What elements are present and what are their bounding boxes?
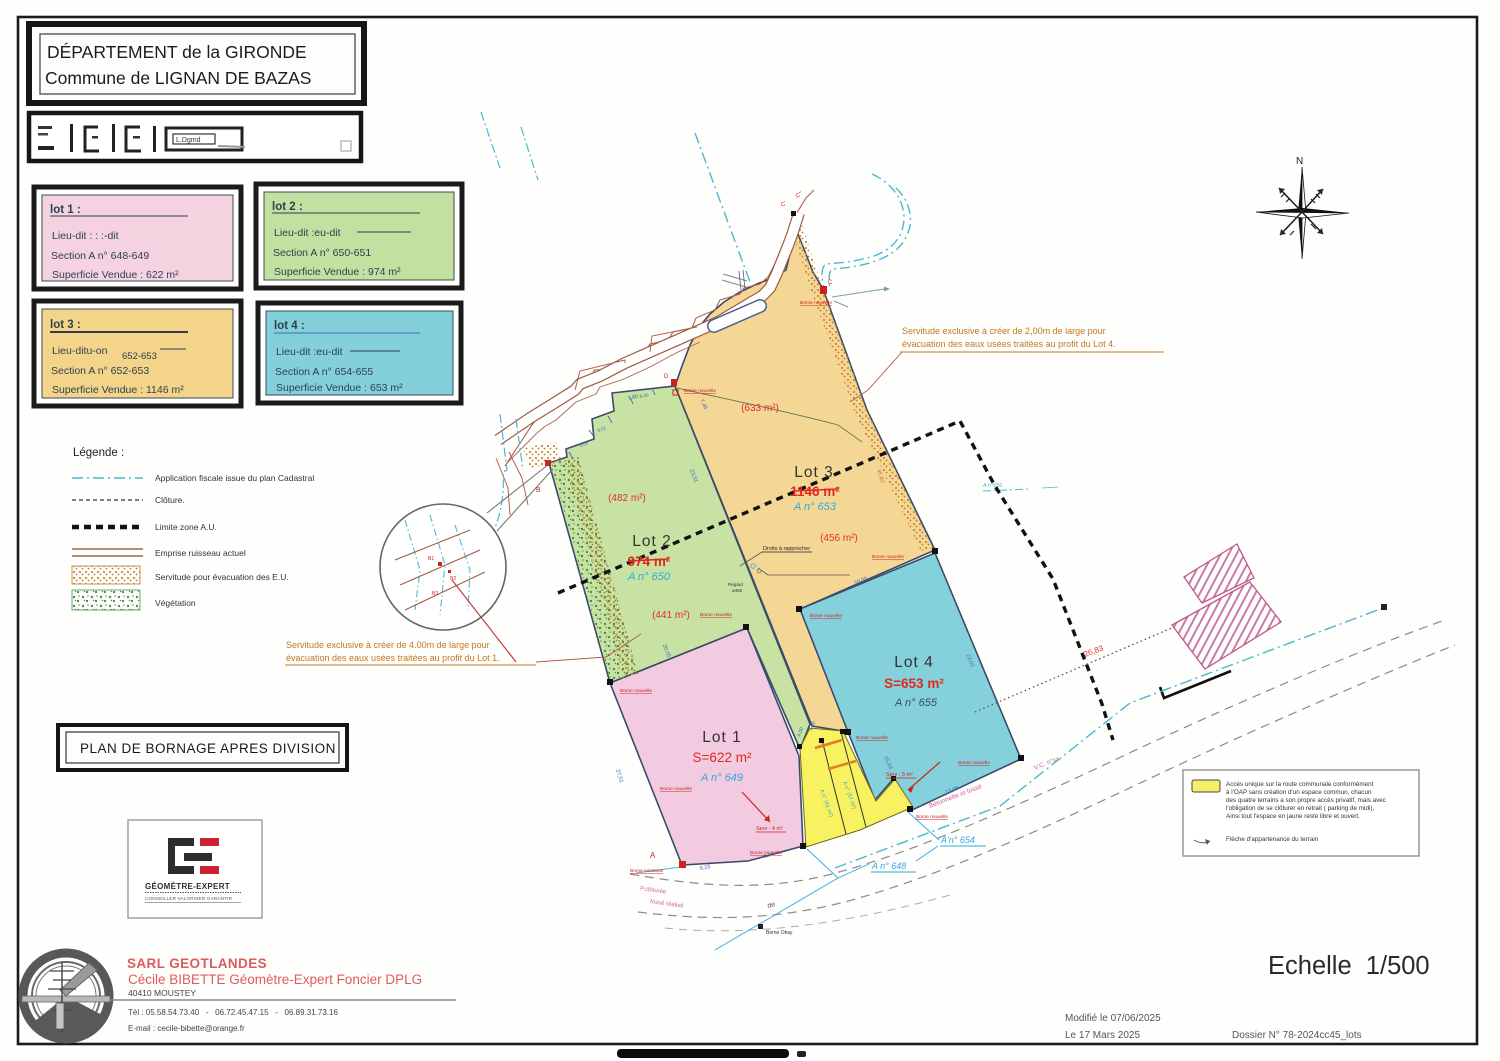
svg-text:Borne Okay: Borne Okay [766, 930, 793, 936]
svg-text:évacuation des eaux usées trai: évacuation des eaux usées traitées au pr… [286, 653, 500, 663]
svg-text:Serv : 4 m²: Serv : 4 m² [756, 826, 783, 832]
svg-text:N: N [1296, 156, 1303, 167]
svg-text:Section A n° 652-653: Section A n° 652-653 [51, 365, 149, 377]
svg-text:Emprise ruisseau actuel: Emprise ruisseau actuel [155, 548, 246, 558]
svg-text:Droits à rapprocher: Droits à rapprocher [763, 546, 810, 552]
svg-text:Limite zone A.U.: Limite zone A.U. [155, 522, 217, 532]
svg-text:Dossier N° 78-2024cc45_lots: Dossier N° 78-2024cc45_lots [1232, 1030, 1362, 1041]
svg-text:lot 4 :: lot 4 : [274, 320, 305, 332]
svg-text:Section A n° 648-649: Section A n° 648-649 [51, 250, 149, 262]
svg-text:A n° 653: A n° 653 [793, 501, 837, 513]
svg-text:(441 m²): (441 m²) [652, 610, 690, 621]
svg-text:S=653 m²: S=653 m² [884, 676, 944, 691]
svg-text:Ainsi tout l'espace en jaune r: Ainsi tout l'espace en jaune reste libre… [1226, 813, 1360, 820]
svg-text:L.Dgmd: L.Dgmd [176, 137, 201, 144]
svg-text:974 m²: 974 m² [628, 554, 671, 569]
svg-text:Superficie Vendue : 653 m²: Superficie Vendue : 653 m² [276, 382, 403, 394]
svg-text:Lot 3: Lot 3 [794, 464, 833, 481]
svg-text:des quatre terrains a son prop: des quatre terrains a son propre accès p… [1226, 797, 1386, 804]
svg-text:Section A n° 650-651: Section A n° 650-651 [273, 247, 371, 259]
svg-text:Flèche d'appartenance du terra: Flèche d'appartenance du terrain [1226, 836, 1319, 843]
svg-text:A'n° 654: A'n° 654 [940, 835, 975, 845]
svg-text:lot 3 :: lot 3 : [50, 319, 81, 331]
svg-text:Modifié le 07/06/2025: Modifié le 07/06/2025 [1065, 1013, 1161, 1024]
svg-text:Lieu-dit : : :-dit: Lieu-dit : : :-dit [52, 230, 119, 242]
svg-text:Borne nouvelle: Borne nouvelle [872, 554, 904, 560]
svg-text:C: C [828, 280, 833, 286]
svg-text:Le 17 Mars 2025: Le 17 Mars 2025 [1065, 1030, 1140, 1041]
svg-text:Superficie Vendue : 622 m²: Superficie Vendue : 622 m² [52, 269, 179, 281]
svg-text:(456 m²): (456 m²) [820, 533, 858, 544]
svg-text:Application fiscale issue du p: Application fiscale issue du plan Cadast… [155, 473, 314, 483]
svg-text:Servitude exclusive à créer de: Servitude exclusive à créer de 2,00m de … [902, 326, 1106, 336]
svg-text:Lot 4: Lot 4 [894, 654, 933, 671]
svg-text:Végétation: Végétation [155, 598, 196, 608]
svg-text:Lieu-dit :eu-dit: Lieu-dit :eu-dit [274, 227, 341, 239]
svg-text:GÉOMÈTRE-EXPERT: GÉOMÈTRE-EXPERT [145, 882, 230, 891]
svg-text:Légende :: Légende : [73, 447, 124, 459]
svg-text:B1: B1 [428, 556, 434, 562]
svg-text:Borne nouvelle: Borne nouvelle [800, 300, 832, 306]
svg-text:S=622 m²: S=622 m² [693, 750, 752, 765]
svg-text:Borne existante: Borne existante [630, 868, 664, 874]
svg-text:DÉPARTEMENT de la GIRONDE: DÉPARTEMENT de la GIRONDE [47, 42, 307, 62]
svg-text:(482 m²): (482 m²) [608, 493, 646, 504]
svg-text:Cécile BIBETTE Géomètre-Expert: Cécile BIBETTE Géomètre-Expert Foncier D… [128, 972, 422, 987]
svg-text:Superficie Vendue : 974 m²: Superficie Vendue : 974 m² [274, 266, 401, 278]
svg-text:A n° 650: A n° 650 [627, 571, 671, 583]
svg-text:CONSEILLER VALORISER GARANTIR: CONSEILLER VALORISER GARANTIR [145, 896, 233, 901]
svg-text:Regard: Regard [728, 582, 743, 587]
svg-text:Lieu-ditu-on: Lieu-ditu-on [52, 345, 108, 357]
svg-text:Borne nouvelle: Borne nouvelle [700, 612, 732, 618]
svg-text:A: A [650, 851, 656, 860]
svg-text:652-653: 652-653 [122, 351, 157, 362]
svg-text:ø450: ø450 [732, 588, 743, 593]
svg-text:D: D [664, 374, 669, 380]
svg-text:A n° 648: A n° 648 [871, 861, 906, 871]
svg-text:B2: B2 [450, 576, 456, 582]
svg-text:A n° 655: A n° 655 [894, 697, 938, 709]
svg-text:40410 MOUSTEY: 40410 MOUSTEY [128, 988, 196, 998]
svg-text:Tél : 05.58.54.73.40 - 06.: Tél : 05.58.54.73.40 - 06.72.45.47.15 - … [128, 1008, 338, 1017]
svg-text:lot 2 :: lot 2 : [272, 201, 303, 213]
svg-text:Superficie Vendue : 1146 m²: Superficie Vendue : 1146 m² [52, 384, 184, 396]
svg-text:Echelle 1/500: Echelle 1/500 [1268, 952, 1430, 980]
svg-text:l'obligation de se clôturer en: l'obligation de se clôturer en retrait (… [1226, 805, 1374, 812]
svg-text:Commune de LIGNAN DE BAZAS: Commune de LIGNAN DE BAZAS [45, 68, 311, 88]
svg-text:A n°556: A n°556 [983, 483, 1002, 489]
svg-text:E-mail : cecile-bibette@orange: E-mail : cecile-bibette@orange.fr [128, 1024, 245, 1033]
svg-text:Borne nouvelle: Borne nouvelle [660, 786, 692, 792]
svg-text:B: B [536, 487, 541, 494]
svg-text:Borne nouvelle: Borne nouvelle [958, 760, 990, 766]
svg-text:A n° 649: A n° 649 [700, 772, 743, 784]
svg-text:Serv : 5 m²: Serv : 5 m² [886, 772, 913, 778]
svg-text:Servitude exclusive à créer de: Servitude exclusive à créer de 4.00m de … [286, 640, 490, 650]
svg-text:Lieu-dit :eu-dit: Lieu-dit :eu-dit [276, 346, 343, 358]
svg-text:Lot 2: Lot 2 [632, 533, 671, 550]
svg-text:Clôture.: Clôture. [155, 495, 185, 505]
svg-text:lot 1 :: lot 1 : [50, 204, 81, 216]
svg-text:PLAN DE BORNAGE APRES DIVISION: PLAN DE BORNAGE APRES DIVISION [80, 741, 336, 756]
svg-text:Borne nouvelle: Borne nouvelle [856, 735, 888, 741]
svg-text:Lot 1: Lot 1 [702, 729, 741, 746]
svg-text:évacuation des eaux usées trai: évacuation des eaux usées traitées au pr… [902, 339, 1116, 349]
svg-text:SARL GEOTLANDES: SARL GEOTLANDES [127, 956, 267, 971]
svg-text:Borne nouvelle: Borne nouvelle [916, 814, 948, 820]
svg-text:à l'OAP sans création d'un esp: à l'OAP sans création d'un espace commun… [1226, 789, 1372, 796]
svg-text:Accès unique sur la route comm: Accès unique sur la route communale conf… [1226, 781, 1374, 788]
svg-text:Borne nouvelle: Borne nouvelle [684, 388, 716, 394]
svg-text:Servitude pour évacuation des: Servitude pour évacuation des E.U. [155, 572, 289, 582]
svg-text:B3: B3 [432, 591, 438, 597]
svg-text:Borne nouvelle: Borne nouvelle [810, 613, 842, 619]
svg-text:(633 m²): (633 m²) [741, 403, 779, 414]
svg-text:Borne nouvelle: Borne nouvelle [620, 688, 652, 694]
svg-text:Section A n° 654-655: Section A n° 654-655 [275, 366, 373, 378]
